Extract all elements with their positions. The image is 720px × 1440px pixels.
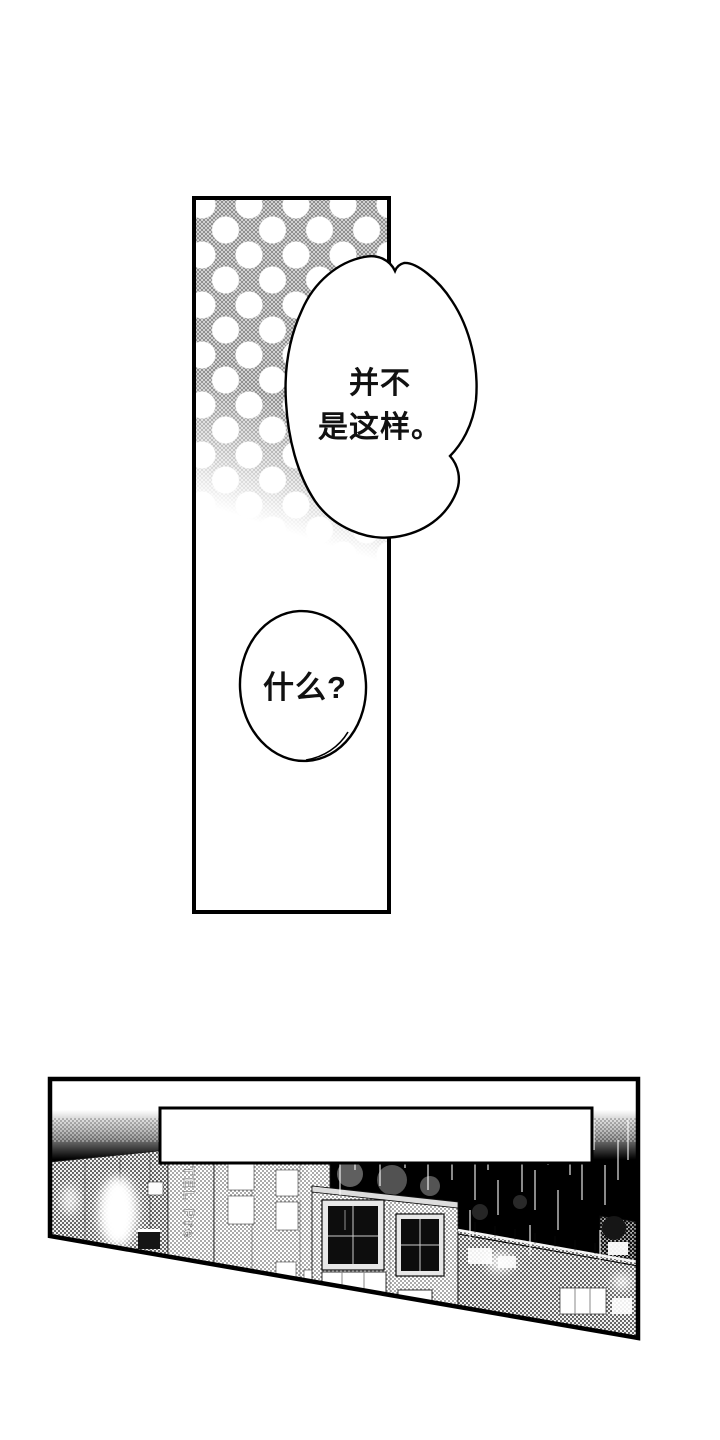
manga-page: 并不 是这样。 什么? xyxy=(0,0,720,1440)
speech-bubble-round-text: 什么? xyxy=(246,668,364,708)
hotel-sign-text: OTEL Pre xyxy=(180,1152,197,1240)
bush xyxy=(602,1216,626,1240)
caption-box xyxy=(160,1108,592,1163)
light-glow xyxy=(98,1176,138,1248)
dark-window xyxy=(138,1232,160,1249)
dark-doorway xyxy=(252,1298,278,1330)
lit-window xyxy=(148,1182,163,1195)
cloud-bubble-line-2: 是这样。 xyxy=(296,406,464,450)
panel-bottom-cityscape: OTEL Pre xyxy=(0,1040,720,1360)
speech-bubble-cloud-text: 并不 是这样。 xyxy=(296,362,464,450)
cloud-bubble-line-1: 并不 xyxy=(296,362,464,406)
